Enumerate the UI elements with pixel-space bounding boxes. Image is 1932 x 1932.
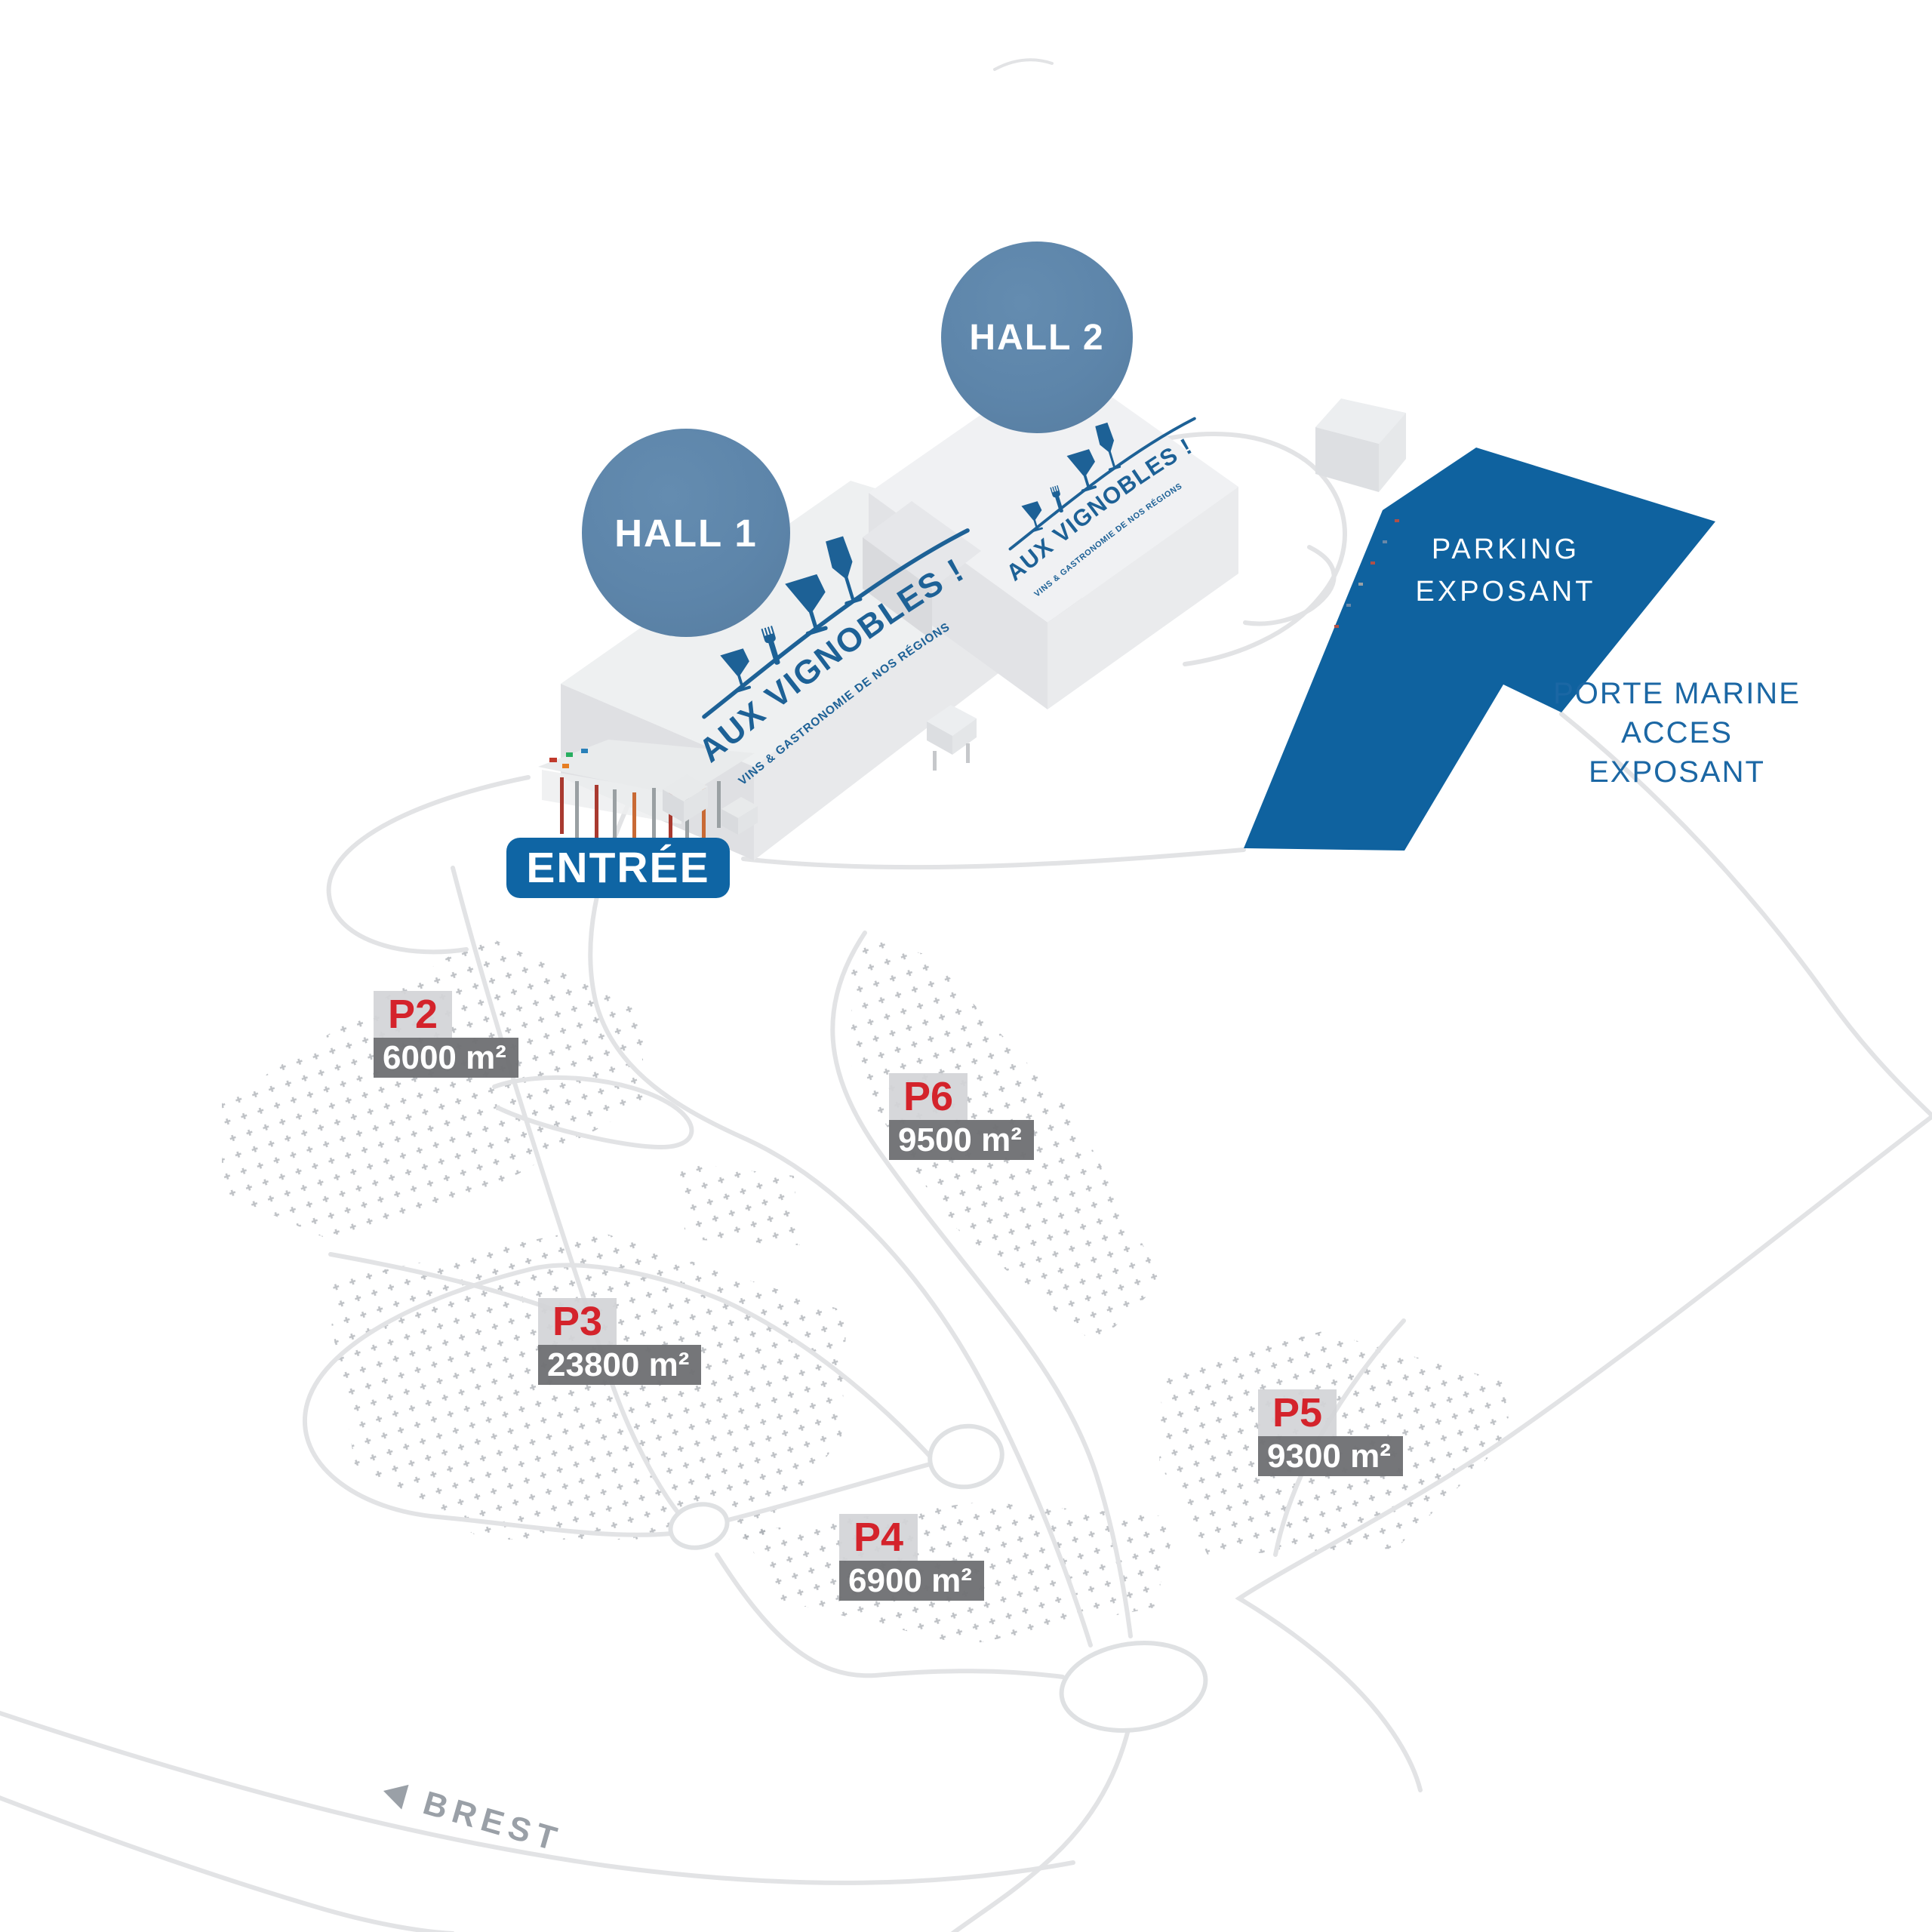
hall-1-marker: HALL 1 xyxy=(582,429,790,637)
parking-area-badge: 6900 m² xyxy=(839,1561,984,1601)
parking-id-badge: P6 xyxy=(889,1073,968,1120)
parking-area-badge: 9300 m² xyxy=(1258,1436,1403,1476)
roundabout xyxy=(1056,1634,1211,1740)
parking-label-p4: P4 6900 m² xyxy=(839,1514,918,1561)
road xyxy=(0,1796,453,1932)
site-map-page: AUX VIGNOBLES ! VINS & GASTRONOMIE DE NO… xyxy=(0,0,1932,1932)
kiosk-leg xyxy=(933,751,937,771)
canopy-speck xyxy=(581,749,588,753)
roundabout xyxy=(925,1420,1007,1492)
road xyxy=(1245,547,1334,623)
parking-id-badge: P2 xyxy=(374,991,452,1038)
parking-area-badge: 6000 m² xyxy=(374,1038,518,1078)
parking-label-p2: P2 6000 m² xyxy=(374,991,452,1038)
canopy-speck xyxy=(562,764,569,768)
parking-area-badge: 9500 m² xyxy=(889,1120,1034,1160)
parking-dots xyxy=(679,1162,800,1245)
gate-line1: PORTE MARINE xyxy=(1552,674,1801,713)
exhibitor-parking-line1: PARKING xyxy=(1381,528,1630,571)
exhibitor-parking-label: PARKING EXPOSANT xyxy=(1381,528,1630,613)
parking-id-badge: P3 xyxy=(538,1298,617,1345)
parking-area-badge: 23800 m² xyxy=(538,1345,701,1385)
kiosk-leg xyxy=(966,743,970,763)
exhibitor-parking-line2: EXPOSANT xyxy=(1381,571,1630,613)
parking-dots xyxy=(222,934,643,1238)
parking-label-p3: P3 23800 m² xyxy=(538,1298,617,1345)
road xyxy=(952,1727,1129,1932)
parking-label-p5: P5 9300 m² xyxy=(1258,1389,1337,1436)
entrance-label: ENTRÉE xyxy=(526,843,709,893)
gate-label: PORTE MARINE ACCES EXPOSANT xyxy=(1552,674,1801,792)
parking-label-p6: P6 9500 m² xyxy=(889,1073,968,1120)
parking-id-badge: P5 xyxy=(1258,1389,1337,1436)
road xyxy=(329,777,528,952)
road xyxy=(995,60,1052,69)
parking-id-badge: P4 xyxy=(839,1514,918,1561)
road xyxy=(743,850,1244,867)
canopy-speck xyxy=(549,758,557,762)
hall-2-label: HALL 2 xyxy=(969,317,1104,358)
service-building xyxy=(1315,398,1406,492)
entrance-badge: ENTRÉE xyxy=(506,838,730,898)
canopy-speck xyxy=(566,752,573,757)
hall-2-marker: HALL 2 xyxy=(941,241,1133,433)
gate-line2: ACCES EXPOSANT xyxy=(1552,713,1801,792)
hall-1-label: HALL 1 xyxy=(614,511,758,555)
